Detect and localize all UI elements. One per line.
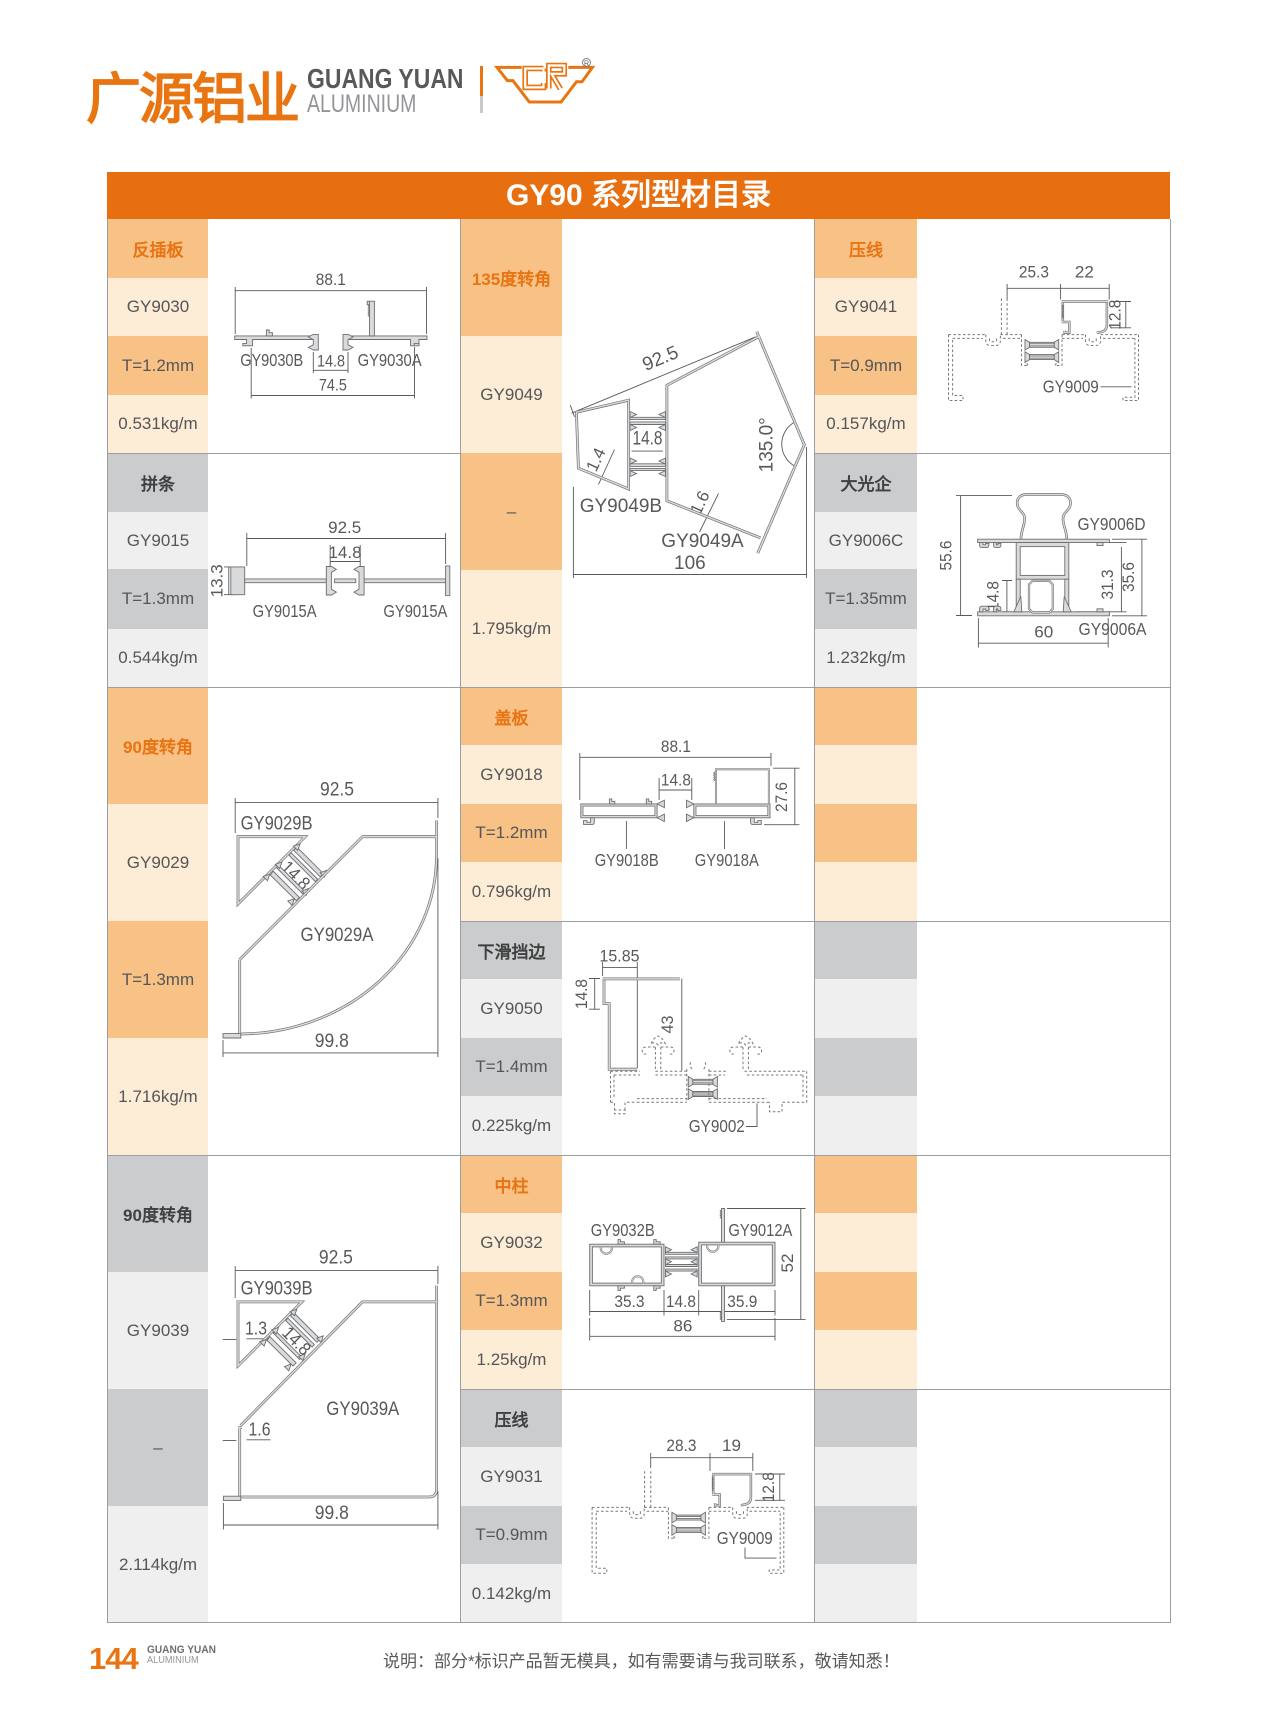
svg-text:GY9002: GY9002 [689, 1116, 745, 1136]
svg-text:GY9039B: GY9039B [241, 1279, 313, 1300]
svg-text:106: 106 [674, 553, 706, 574]
svg-text:GY9006D: GY9006D [1078, 514, 1146, 534]
svg-text:GY9009: GY9009 [1043, 377, 1099, 397]
svg-text:14.8: 14.8 [633, 429, 663, 450]
svg-text:GY9032B: GY9032B [591, 1220, 655, 1240]
svg-text:88.1: 88.1 [661, 737, 691, 756]
svg-text:60: 60 [1034, 623, 1053, 642]
svg-text:92.5: 92.5 [328, 518, 361, 537]
svg-text:31.3: 31.3 [1098, 570, 1117, 600]
svg-text:27.6: 27.6 [772, 782, 791, 812]
svg-text:GY9009: GY9009 [717, 1528, 773, 1548]
svg-text:12.8: 12.8 [759, 1472, 778, 1502]
svg-text:43: 43 [658, 1016, 677, 1034]
svg-text:28.3: 28.3 [666, 1436, 696, 1455]
svg-text:99.8: 99.8 [315, 1503, 349, 1524]
svg-text:35.9: 35.9 [727, 1292, 757, 1311]
svg-text:GY9049A: GY9049A [661, 531, 744, 552]
svg-text:GY9006A: GY9006A [1079, 619, 1147, 639]
svg-text:19: 19 [722, 1436, 741, 1455]
svg-text:GY9012A: GY9012A [728, 1220, 792, 1240]
svg-text:14.8: 14.8 [572, 979, 591, 1009]
svg-text:GY9015A: GY9015A [253, 601, 317, 621]
svg-text:99.8: 99.8 [315, 1031, 349, 1052]
svg-text:1.3: 1.3 [245, 1319, 267, 1339]
svg-text:GY9049B: GY9049B [580, 496, 662, 517]
svg-text:GY9018A: GY9018A [695, 850, 759, 870]
svg-text:15.85: 15.85 [600, 947, 640, 966]
svg-text:35.6: 35.6 [1119, 562, 1138, 592]
svg-text:14.8: 14.8 [661, 771, 691, 790]
svg-text:12.8: 12.8 [1106, 300, 1125, 330]
svg-text:GY9039A: GY9039A [326, 1399, 399, 1420]
svg-text:14.8: 14.8 [328, 543, 361, 562]
svg-text:GY9029B: GY9029B [241, 814, 313, 835]
svg-text:92.5: 92.5 [320, 780, 354, 801]
svg-text:135.0°: 135.0° [757, 417, 778, 472]
svg-text:GY9029A: GY9029A [301, 925, 374, 946]
svg-text:14.8: 14.8 [317, 352, 345, 371]
svg-text:88.1: 88.1 [316, 270, 346, 289]
svg-text:GY9030B: GY9030B [240, 350, 303, 370]
svg-text:GY9018B: GY9018B [595, 850, 659, 870]
svg-text:22: 22 [1075, 263, 1094, 282]
svg-text:35.3: 35.3 [614, 1292, 644, 1311]
svg-text:13.3: 13.3 [208, 564, 227, 597]
svg-text:52: 52 [778, 1254, 797, 1273]
svg-text:55.6: 55.6 [937, 541, 956, 571]
svg-text:GY9015A: GY9015A [383, 601, 447, 621]
svg-text:1.6: 1.6 [249, 1420, 271, 1440]
svg-text:74.5: 74.5 [319, 376, 347, 395]
svg-text:14.8: 14.8 [666, 1292, 696, 1311]
svg-text:92.5: 92.5 [639, 342, 681, 376]
svg-text:25.3: 25.3 [1019, 263, 1049, 282]
svg-text:86: 86 [673, 1317, 692, 1336]
svg-text:GY9030A: GY9030A [358, 350, 422, 370]
svg-text:92.5: 92.5 [319, 1248, 353, 1269]
svg-text:R: R [584, 60, 589, 67]
